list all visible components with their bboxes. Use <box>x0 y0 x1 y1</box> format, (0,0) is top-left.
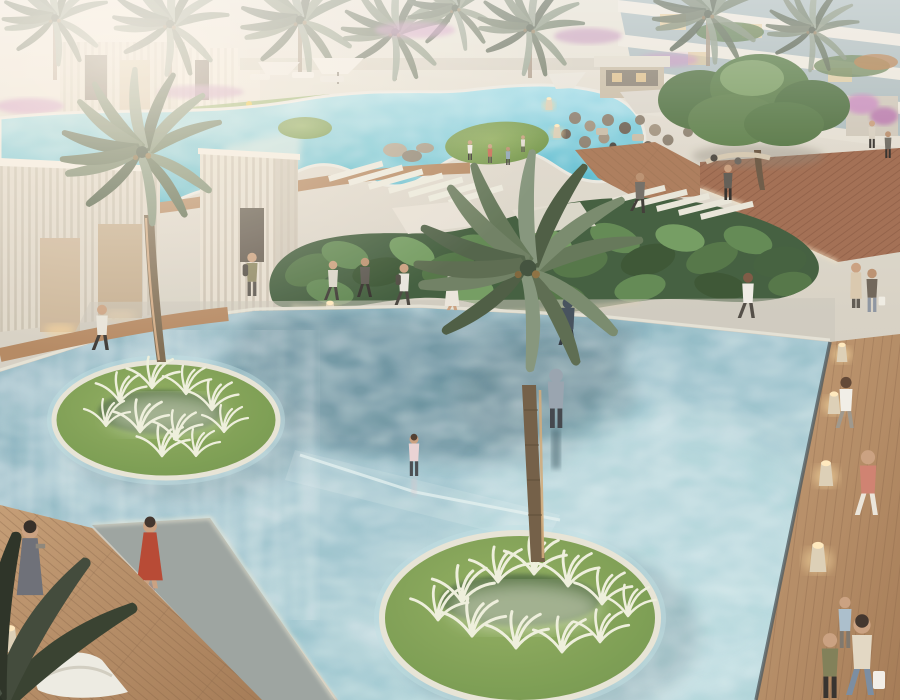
resort-scene <box>0 0 900 700</box>
atmospheric-haze <box>0 0 900 700</box>
rendering-canvas <box>0 0 900 700</box>
